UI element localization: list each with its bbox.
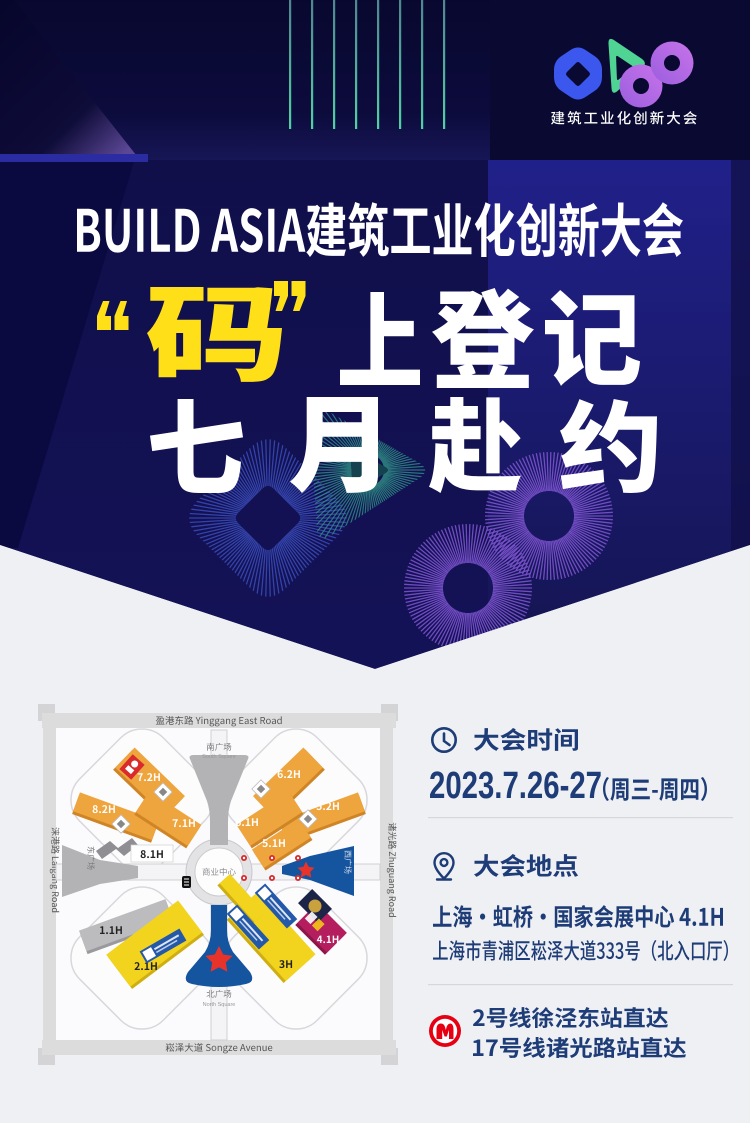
svg-text:North Square: North Square bbox=[203, 1002, 236, 1008]
svg-text:2023.7.26-27: 2023.7.26-27 bbox=[429, 765, 602, 807]
svg-text:South Square: South Square bbox=[202, 754, 236, 760]
